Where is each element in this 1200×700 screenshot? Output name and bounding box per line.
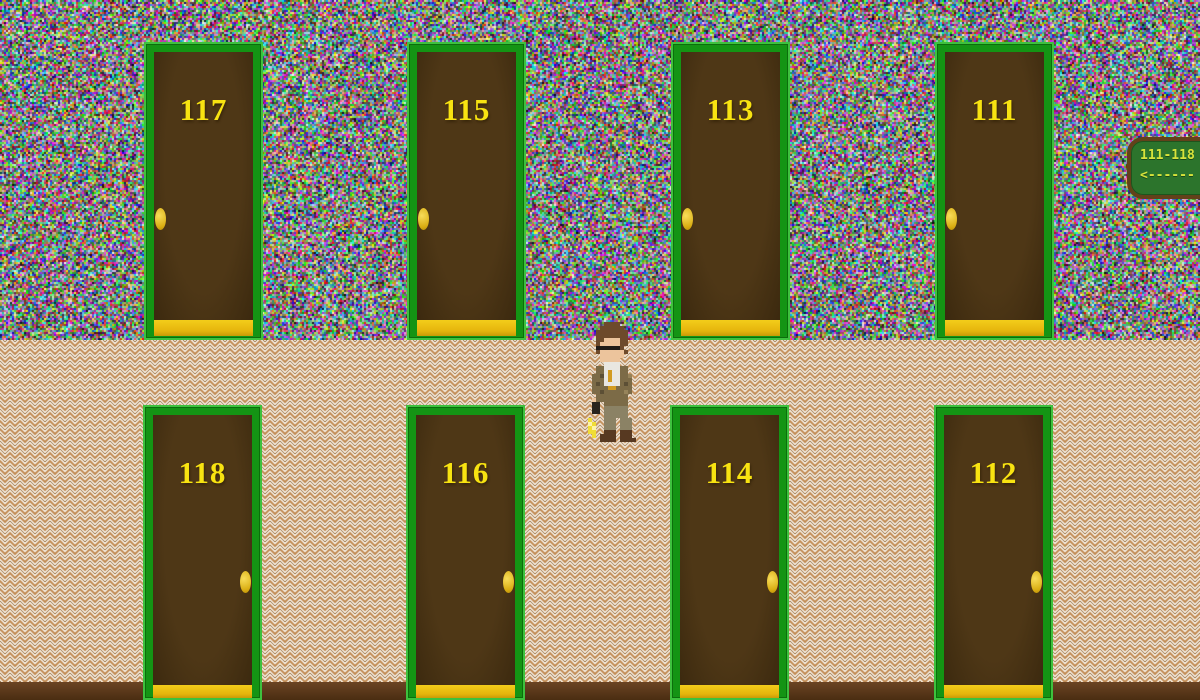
player-sprite-icon — [588, 322, 636, 442]
left-arrow-icon: <------ — [1140, 166, 1200, 186]
doorknob-icon — [1031, 571, 1042, 593]
door-112[interactable]: 112 — [934, 405, 1053, 700]
room-range-text: 111-118 — [1140, 146, 1200, 166]
player-character[interactable] — [588, 322, 636, 442]
door-panel: 113 — [681, 52, 780, 330]
door-116[interactable]: 116 — [406, 405, 525, 700]
door-panel: 111 — [945, 52, 1044, 330]
door-kickplate — [417, 320, 516, 336]
doorknob-icon — [767, 571, 778, 593]
door-number: 117 — [154, 92, 253, 128]
doorknob-icon — [503, 571, 514, 593]
door-number: 111 — [945, 92, 1044, 128]
door-number: 113 — [681, 92, 780, 128]
door-panel: 114 — [680, 415, 779, 698]
door-panel: 115 — [417, 52, 516, 330]
door-113[interactable]: 113 — [671, 42, 790, 340]
door-117[interactable]: 117 — [144, 42, 263, 340]
door-118[interactable]: 118 — [143, 405, 262, 700]
door-panel: 117 — [154, 52, 253, 330]
door-kickplate — [681, 320, 780, 336]
doorknob-icon — [946, 208, 957, 230]
door-number: 115 — [417, 92, 516, 128]
door-kickplate — [416, 685, 515, 698]
door-kickplate — [944, 685, 1043, 698]
door-kickplate — [154, 320, 253, 336]
doorknob-icon — [418, 208, 429, 230]
door-panel: 112 — [944, 415, 1043, 698]
door-114[interactable]: 114 — [670, 405, 789, 700]
door-kickplate — [945, 320, 1044, 336]
door-115[interactable]: 115 — [407, 42, 526, 340]
doorknob-icon — [682, 208, 693, 230]
door-panel: 116 — [416, 415, 515, 698]
door-kickplate — [680, 685, 779, 698]
door-number: 116 — [416, 455, 515, 491]
game-stage: 117 115 113 111 118 116 — [0, 0, 1200, 700]
door-number: 112 — [944, 455, 1043, 491]
door-number: 118 — [153, 455, 252, 491]
door-111[interactable]: 111 — [935, 42, 1054, 340]
door-kickplate — [153, 685, 252, 698]
door-panel: 118 — [153, 415, 252, 698]
room-range-sign: 111-118 <------ — [1127, 137, 1200, 199]
door-number: 114 — [680, 455, 779, 491]
doorknob-icon — [155, 208, 166, 230]
doorknob-icon — [240, 571, 251, 593]
